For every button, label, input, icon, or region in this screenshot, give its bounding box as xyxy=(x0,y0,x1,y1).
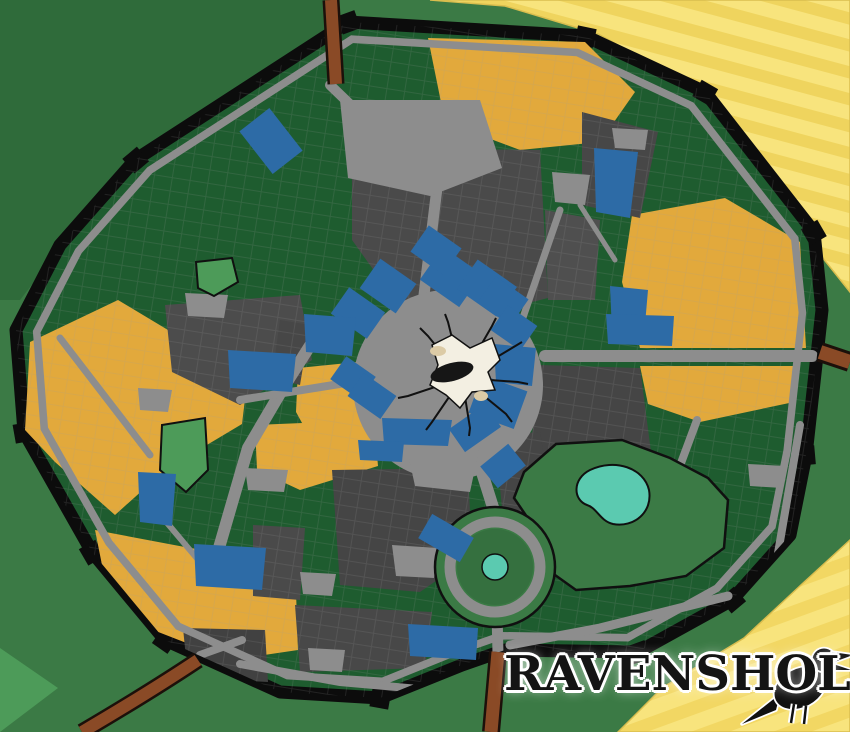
reeds-pond xyxy=(482,554,508,580)
ravensholm-city-map: RAVENSHOLM xyxy=(0,0,850,732)
map-canvas xyxy=(0,0,850,732)
map-title: RAVENSHOLM xyxy=(504,650,848,698)
phoenix-circle-park xyxy=(435,507,555,627)
